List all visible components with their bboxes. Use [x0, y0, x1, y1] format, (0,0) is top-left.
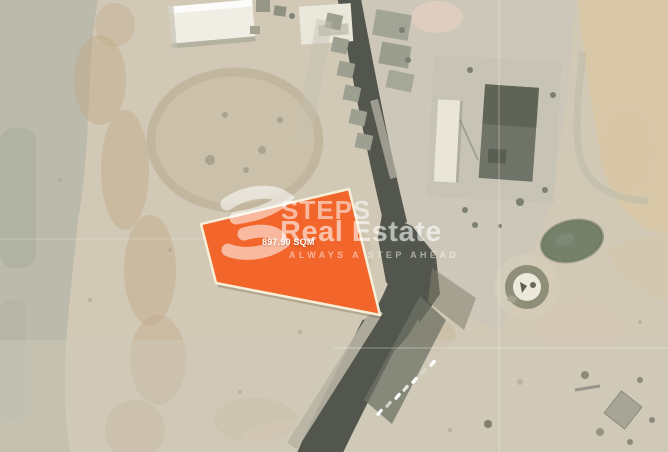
satellite-map	[0, 0, 668, 452]
site-dark-building	[479, 84, 539, 182]
listing-map-image: STEPS Real Estate ALWAYS A STEP AHEAD 89…	[0, 0, 668, 452]
warehouse-building	[168, 0, 255, 49]
dirt-mound	[147, 68, 323, 212]
site-white-building	[434, 99, 463, 182]
water-tank-roundabout	[494, 254, 560, 320]
